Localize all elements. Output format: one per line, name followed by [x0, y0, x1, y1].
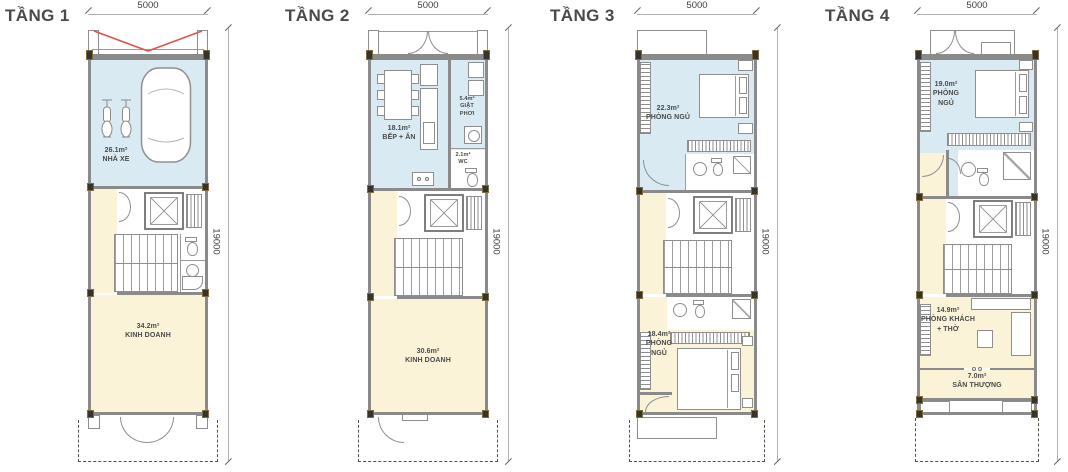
floor-3-panel: TẦNG 3 5000 19000 22.3m² PHÒNG NGỦ [534, 0, 801, 472]
lot-boundary-dashed [915, 418, 1039, 462]
entry-step [402, 414, 428, 421]
room-name: GIẶT [450, 103, 484, 110]
room-name: WC [450, 159, 476, 166]
floor-3-title: TẦNG 3 [550, 6, 615, 26]
business-room-label: 30.6m² KINH DOANH [371, 347, 485, 366]
interior-wall [397, 296, 485, 299]
room-name: KINH DOANH [371, 356, 485, 365]
width-dimension-label: 5000 [917, 0, 1037, 11]
floor-1-title: TẦNG 1 [5, 6, 70, 26]
terrace-wall [920, 398, 1034, 401]
room-name: PHƠI [450, 111, 484, 118]
bath-partition [946, 150, 949, 196]
column [483, 50, 490, 60]
width-dimension-line [917, 14, 1037, 15]
floor-2-panel: TẦNG 2 5000 19000 [267, 0, 534, 472]
floorplan-sheet: TẦNG 1 5000 19000 [0, 0, 1068, 472]
column [636, 291, 643, 299]
room-area: 34.2m² [91, 322, 205, 331]
column [1031, 410, 1038, 418]
room-area: 14.9m² [919, 306, 977, 315]
floor-3-plan: 5000 19000 22.3m² PHÒNG NGỦ [637, 0, 757, 472]
business-room-label: 34.2m² KINH DOANH [91, 322, 205, 341]
lower-roof-ledge [637, 417, 717, 439]
room-name: KINH DOANH [91, 331, 205, 340]
hinge-dot [978, 367, 982, 371]
column [752, 50, 759, 60]
room-name: NGỦ [639, 349, 679, 358]
column [916, 291, 923, 299]
terrace-label: 7.0m² SÂN THƯỢNG [920, 372, 1034, 391]
interior-wall [666, 294, 754, 297]
floor-2-title: TẦNG 2 [285, 6, 350, 26]
room-area: 7.0m² [920, 372, 1034, 381]
hinge-dot [972, 367, 976, 371]
door-arc [428, 31, 448, 54]
width-dimension-line [368, 14, 488, 15]
living-room-label: 14.9m² PHÒNG KHÁCH + THỜ [919, 306, 977, 334]
kitchen-room-label: 18.1m² BẾP + ĂN [368, 124, 430, 143]
floor-2-plan: 5000 19000 [368, 0, 488, 472]
column [87, 410, 94, 418]
floor-1-panel: TẦNG 1 5000 19000 [0, 0, 267, 472]
height-dimension-label: 19000 [491, 220, 502, 264]
column [202, 410, 209, 418]
column [367, 410, 374, 418]
terrace-wall [920, 368, 964, 370]
folding-gate-icon [92, 29, 204, 53]
building-outline [917, 57, 1037, 415]
column [366, 50, 373, 60]
room-name: PHÒNG [917, 89, 975, 98]
column [635, 50, 642, 60]
interior-wall [117, 292, 205, 295]
interior-wall [946, 294, 1034, 297]
burner-dot [417, 177, 421, 181]
column [87, 289, 94, 297]
column [87, 183, 94, 191]
room-name: SÂN THƯỢNG [920, 381, 1034, 390]
height-dimension-label: 19000 [211, 220, 222, 264]
column [1031, 396, 1038, 404]
height-dimension-line [1057, 28, 1058, 461]
height-dimension-line [508, 28, 509, 461]
column [482, 185, 489, 193]
laundry-room-label: 5.4m² GIẶT PHƠI [450, 96, 484, 118]
column [1031, 291, 1038, 299]
room-area: 26.1m² [90, 146, 142, 155]
laundry-partition [448, 60, 451, 188]
room-area: 19.0m² [917, 80, 975, 89]
column [916, 193, 923, 201]
column [1032, 50, 1039, 60]
column [367, 293, 374, 301]
column [202, 183, 209, 191]
column [751, 410, 758, 418]
room-area: 18.4m² [639, 330, 679, 339]
garage-room-label: 26.1m² NHÀ XE [90, 146, 142, 165]
burner-dot [425, 177, 429, 181]
column [915, 50, 922, 60]
height-dimension-line [228, 28, 229, 461]
room-name: NGỦ [917, 99, 975, 108]
bedroom-label: 19.0m² PHÒNG NGỦ [917, 80, 975, 108]
height-dimension-label: 19000 [760, 220, 771, 264]
floor-4-plan: 5000 19000 19.0m² PHÒNG N [917, 0, 1037, 472]
column [636, 410, 643, 418]
column [482, 293, 489, 301]
room-name: BẾP + ĂN [368, 133, 430, 142]
height-dimension-line [777, 28, 778, 461]
room-name: + THỜ [919, 325, 977, 334]
bedroom1-label: 22.3m² PHÒNG NGỦ [639, 104, 697, 123]
column [751, 187, 758, 195]
room-area: 30.6m² [371, 347, 485, 356]
column [203, 50, 210, 60]
width-dimension-line [88, 14, 208, 15]
floor-4-panel: TẦNG 4 5000 19000 19.0m² [801, 0, 1068, 472]
room-name: PHÒNG NGỦ [639, 113, 697, 122]
wc-room-label: 2.1m² WC [450, 152, 476, 167]
width-dimension-label: 5000 [637, 0, 757, 11]
column [482, 410, 489, 418]
terrace-wall [990, 368, 1034, 370]
column [202, 289, 209, 297]
width-dimension-label: 5000 [88, 0, 208, 11]
width-dimension-line [637, 14, 757, 15]
floor-1-plan: 5000 19000 [88, 0, 208, 472]
room-area: 18.1m² [368, 124, 430, 133]
interior-wall [91, 186, 205, 189]
room-area: 2.1m² [450, 152, 476, 159]
floor-4-title: TẦNG 4 [825, 6, 890, 26]
column [636, 187, 643, 195]
room-name: PHÒNG [639, 339, 679, 348]
column [367, 185, 374, 193]
width-dimension-label: 5000 [368, 0, 488, 11]
column [916, 410, 923, 418]
bedroom2-label: 18.4m² PHÒNG NGỦ [639, 330, 679, 358]
room-area: 22.3m² [639, 104, 697, 113]
room-name: NHÀ XE [90, 155, 142, 164]
interior-wall [371, 188, 485, 191]
room-name: PHÒNG KHÁCH [919, 315, 977, 324]
building-outline [88, 57, 208, 415]
interior-wall [920, 196, 1034, 199]
entry-wall [640, 392, 672, 395]
balcony-outline [637, 30, 707, 55]
column [916, 396, 923, 404]
column [751, 291, 758, 299]
door-arc [408, 31, 428, 54]
column [86, 50, 93, 60]
column [1031, 193, 1038, 201]
height-dimension-label: 19000 [1040, 220, 1051, 264]
interior-wall [640, 190, 754, 193]
